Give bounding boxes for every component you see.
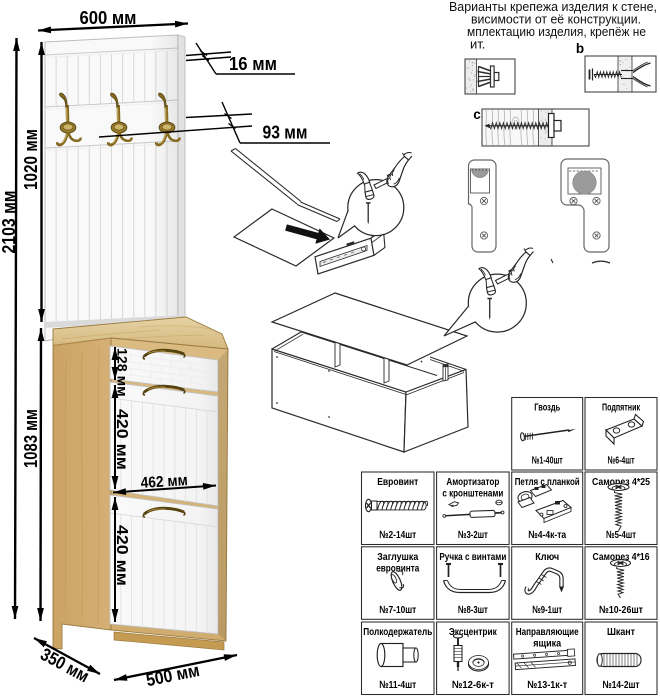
svg-text:№4-4к-та: №4-4к-та	[528, 529, 566, 541]
svg-text:350 мм: 350 мм	[37, 644, 92, 686]
svg-text:Гвоздь: Гвоздь	[534, 402, 560, 414]
svg-text:Шкант: Шкант	[607, 626, 635, 638]
svg-text:№8-3шт: №8-3шт	[458, 604, 488, 616]
svg-text:Евровинт: Евровинт	[377, 476, 418, 488]
svg-text:Ручка с винтами: Ручка с винтами	[439, 551, 506, 563]
svg-text:№2-14шт: №2-14шт	[379, 529, 416, 541]
svg-text:№14-2шт: №14-2шт	[603, 679, 640, 691]
svg-text:16 мм: 16 мм	[229, 53, 277, 74]
svg-text:Направляющие: Направляющие	[516, 626, 579, 638]
svg-text:1083 мм: 1083 мм	[21, 409, 41, 468]
svg-text:Варианты крепежа изделия к сте: Варианты крепежа изделия к стене,висимос…	[449, 0, 657, 52]
svg-text:евровинта: евровинта	[376, 562, 419, 574]
svg-text:93 мм: 93 мм	[263, 122, 308, 143]
svg-text:Ключ: Ключ	[535, 551, 559, 563]
svg-text:№6-4шт: №6-4шт	[608, 455, 635, 467]
svg-text:600 мм: 600 мм	[80, 7, 137, 28]
svg-text:№10-26шт: №10-26шт	[599, 604, 643, 616]
svg-text:420 мм: 420 мм	[113, 525, 130, 586]
svg-text:№7-10шт: №7-10шт	[379, 604, 416, 616]
svg-text:2103 мм: 2103 мм	[0, 191, 19, 254]
svg-text:№12-6к-т: №12-6к-т	[452, 679, 494, 691]
svg-text:№5-4шт: №5-4шт	[606, 529, 636, 541]
svg-text:Подпятник: Подпятник	[602, 402, 641, 414]
svg-text:Заглушка: Заглушка	[377, 551, 418, 563]
svg-text:№3-2шт: №3-2шт	[458, 529, 488, 541]
svg-text:420 мм: 420 мм	[113, 409, 130, 470]
svg-text:№13-1к-т: №13-1к-т	[527, 679, 567, 691]
svg-text:№9-1шт: №9-1шт	[532, 604, 562, 616]
svg-text:ящика: ящика	[533, 638, 561, 650]
svg-text:b: b	[576, 41, 584, 56]
svg-text:1020 мм: 1020 мм	[21, 129, 41, 190]
svg-text:Полкодержатель: Полкодержатель	[363, 626, 432, 638]
svg-text:Амортизатор: Амортизатор	[446, 476, 499, 488]
svg-text:c: c	[473, 107, 481, 122]
svg-text:462 мм: 462 мм	[140, 472, 188, 492]
svg-text:500 мм: 500 мм	[144, 660, 201, 690]
svg-text:с кронштенами: с кронштенами	[442, 488, 503, 500]
svg-text:№11-4шт: №11-4шт	[379, 679, 416, 691]
svg-text:№1-40шт: №1-40шт	[532, 455, 563, 467]
